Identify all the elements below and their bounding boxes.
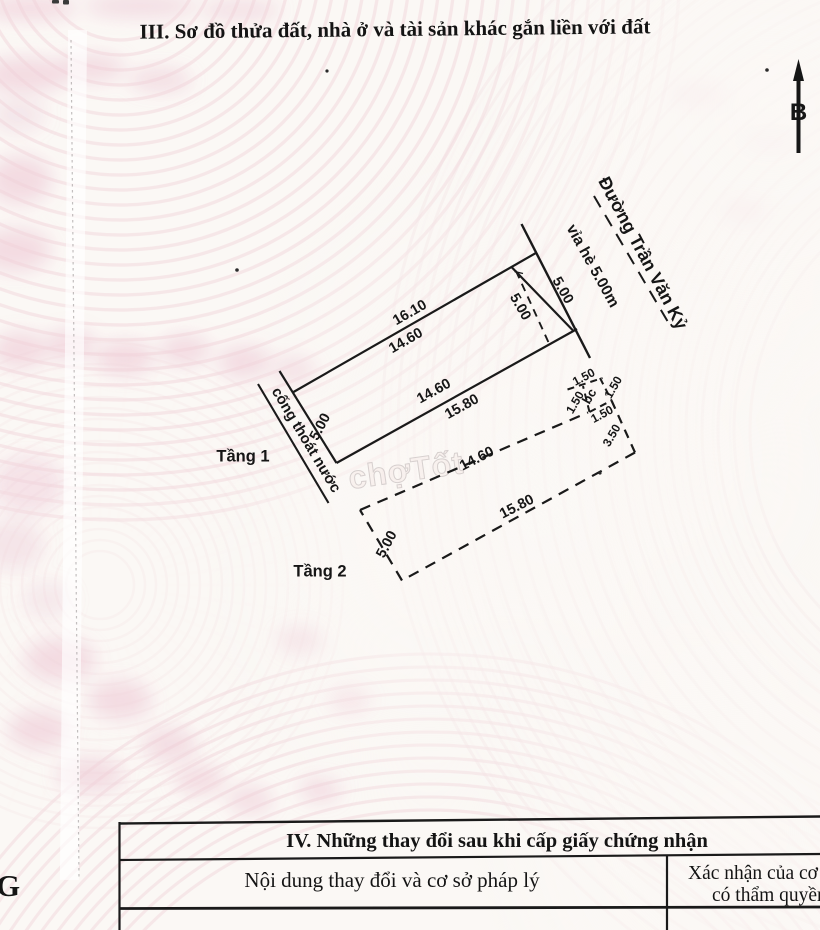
svg-text:Nội dung thay đổi và cơ sở phá: Nội dung thay đổi và cơ sở pháp lý bbox=[244, 868, 540, 892]
svg-text:G: G bbox=[0, 868, 20, 903]
svg-text:Tầng 1: Tầng 1 bbox=[216, 448, 269, 466]
svg-text:B: B bbox=[790, 99, 807, 126]
svg-text:có thẩm quyền: có thẩm quyền bbox=[712, 885, 820, 906]
svg-text:Xác nhận của cơ q: Xác nhận của cơ q bbox=[688, 863, 820, 884]
svg-text:IV. Những thay đổi sau khi cấp: IV. Những thay đổi sau khi cấp giấy chứn… bbox=[286, 830, 708, 852]
svg-text:Tầng 2: Tầng 2 bbox=[293, 563, 346, 581]
